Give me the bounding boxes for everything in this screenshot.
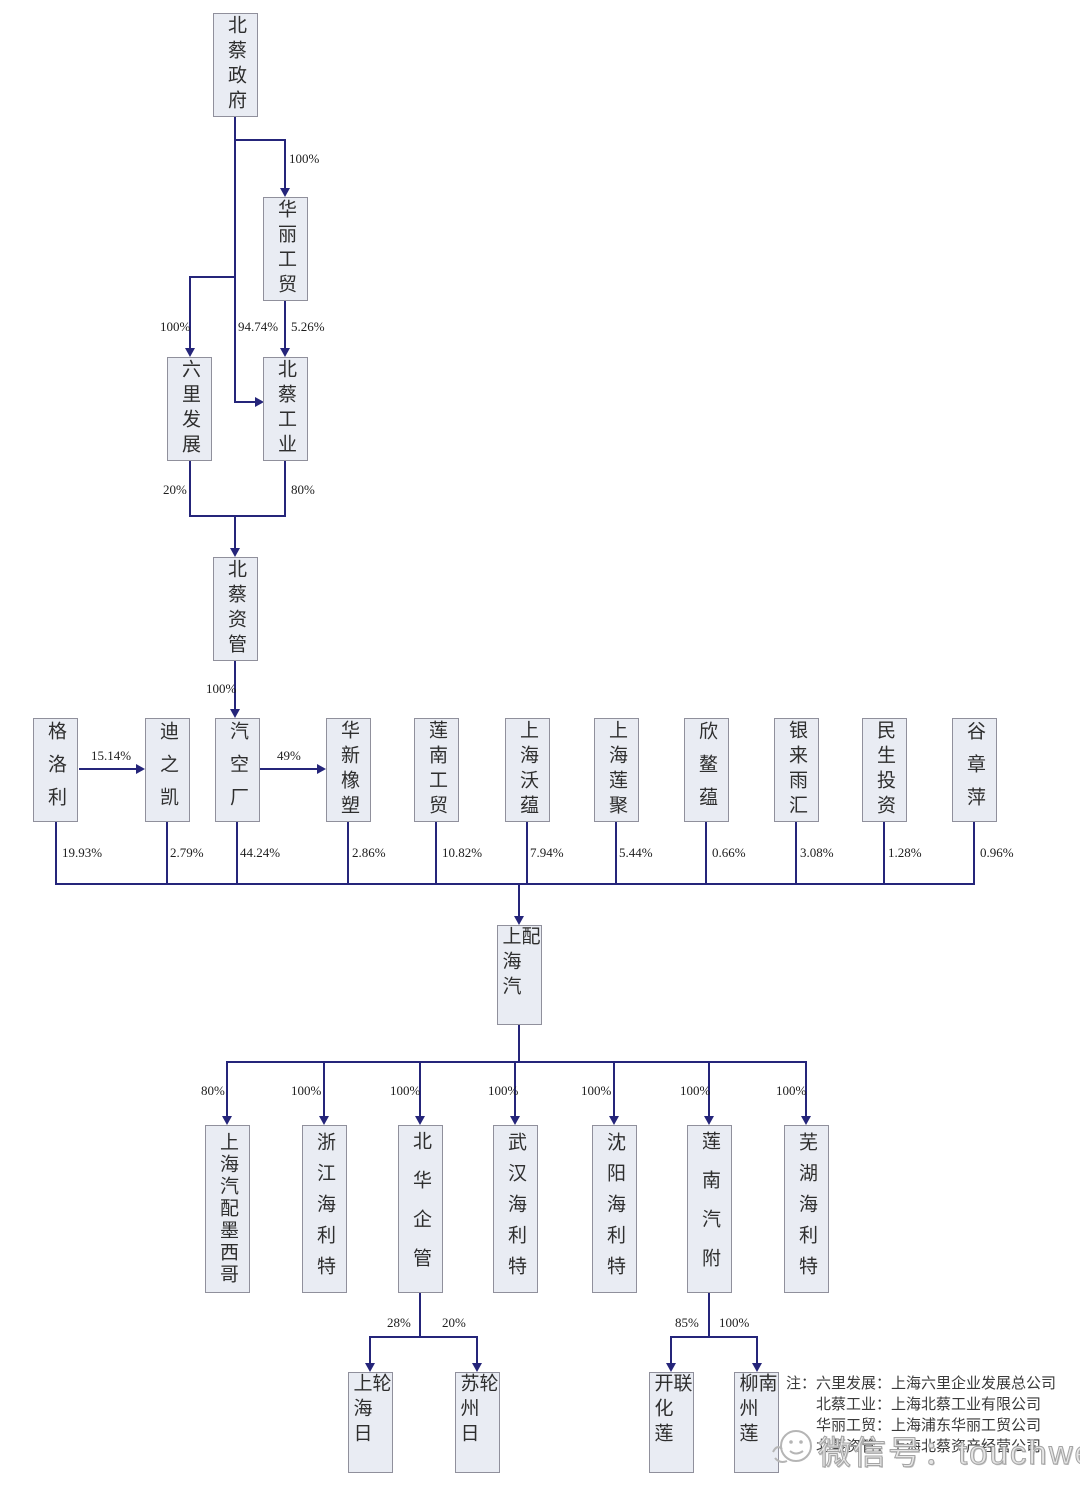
edge-line: [260, 768, 318, 770]
node-label: 北蔡政府: [226, 15, 245, 115]
edge-line: [323, 1061, 325, 1117]
ownership-label: 20%: [163, 482, 187, 498]
ownership-label: 100%: [581, 1083, 611, 1099]
arrow-down-icon: [185, 348, 195, 357]
node-wuhan-hailite: 武汉海利特: [493, 1125, 538, 1293]
edge-line: [795, 822, 797, 885]
node-shenyang-hailite: 沈阳海利特: [592, 1125, 637, 1293]
edge-line: [883, 822, 885, 885]
node-yinlai-yuhui: 银来雨汇: [774, 718, 819, 822]
edge-line: [189, 515, 286, 517]
ownership-label: 1.28%: [888, 845, 922, 861]
node-label: 格洛利: [46, 721, 65, 820]
node-beicai-gov: 北蔡政府: [213, 13, 258, 117]
edge-line: [189, 461, 191, 517]
edge-line: [526, 822, 528, 885]
ownership-label: 100%: [206, 681, 236, 697]
arrow-down-icon: [222, 1116, 232, 1125]
node-label: 北蔡资管: [226, 559, 245, 659]
arrow-down-icon: [514, 916, 524, 925]
node-label: 莲南工贸: [427, 720, 446, 820]
node-label: 汽空厂: [228, 721, 247, 820]
edge-line: [234, 117, 236, 403]
edge-line: [234, 401, 255, 403]
node-gu-zhangping: 谷章萍: [952, 718, 997, 822]
ownership-label: 85%: [675, 1315, 699, 1331]
arrow-down-icon: [230, 709, 240, 718]
footnote-line: 注：六里发展：上海六里企业发展总公司: [786, 1374, 1056, 1395]
ownership-label: 0.96%: [980, 845, 1014, 861]
node-label: 谷章萍: [965, 721, 984, 820]
edge-line: [347, 822, 349, 885]
ownership-label: 20%: [442, 1315, 466, 1331]
node-label: 上海沃蕴: [518, 720, 537, 820]
node-wuhu-hailite: 芜湖海利特: [784, 1125, 829, 1293]
arrow-down-icon: [510, 1116, 520, 1125]
arrow-down-icon: [280, 348, 290, 357]
node-label: 北蔡工业: [276, 359, 295, 459]
node-qikongchang: 汽空厂: [215, 718, 260, 822]
edge-line: [435, 822, 437, 885]
node-label: 民生投资: [875, 720, 894, 820]
edge-line: [369, 1336, 371, 1364]
edge-line: [670, 1336, 758, 1338]
node-suzhou-rilun: 苏州日轮: [455, 1372, 500, 1473]
node-label: 迪之凯: [158, 721, 177, 820]
ownership-label: 80%: [201, 1083, 225, 1099]
ownership-label: 100%: [719, 1315, 749, 1331]
node-shanghai-qipei: 上海汽配: [497, 925, 542, 1025]
ownership-label: 100%: [680, 1083, 710, 1099]
edge-line: [756, 1336, 758, 1364]
node-shanghai-lianju: 上海莲聚: [594, 718, 639, 822]
edge-line: [419, 1293, 421, 1338]
node-dizhikai: 迪之凯: [145, 718, 190, 822]
arrow-down-icon: [280, 188, 290, 197]
node-label: 上海汽配墨西哥: [218, 1132, 237, 1286]
ownership-label: 94.74%: [238, 319, 278, 335]
edge-line: [973, 822, 975, 885]
arrow-right-icon: [136, 764, 145, 774]
arrow-right-icon: [317, 764, 326, 774]
ownership-label: 49%: [277, 748, 301, 764]
node-huaxin-xiangsu: 华新橡塑: [326, 718, 371, 822]
footnote-text: 六里发展：上海六里企业发展总公司: [816, 1376, 1056, 1392]
edge-line: [369, 1336, 478, 1338]
node-label: 上海莲聚: [607, 720, 626, 820]
edge-line: [476, 1336, 478, 1364]
node-label: 苏州日轮: [459, 1373, 497, 1472]
edge-line: [226, 1061, 228, 1117]
node-beicai-ziguan: 北蔡资管: [213, 557, 258, 661]
node-beicai-gongye: 北蔡工业: [263, 357, 308, 461]
node-label: 浙江海利特: [315, 1132, 334, 1287]
footnote-line: 北蔡资管：上海北蔡资产经营公司: [786, 1437, 1056, 1458]
ownership-label: 100%: [291, 1083, 321, 1099]
bus-line: [226, 1061, 807, 1063]
node-label: 华丽工贸: [276, 199, 295, 299]
edge-line: [189, 276, 236, 278]
edge-line: [284, 300, 286, 349]
node-geluoli: 格洛利: [33, 718, 78, 822]
edge-line: [615, 822, 617, 885]
ownership-label: 15.14%: [91, 748, 131, 764]
node-label: 开化莲联: [653, 1373, 691, 1472]
footnote-prefix: 注：: [786, 1376, 816, 1392]
ownership-label: 2.86%: [352, 845, 386, 861]
edge-line: [518, 1025, 520, 1063]
edge-line: [236, 822, 238, 885]
node-label: 华新橡塑: [339, 720, 358, 820]
node-label: 北华企管: [411, 1131, 430, 1287]
arrow-down-icon: [365, 1363, 375, 1372]
ownership-label: 19.93%: [62, 845, 102, 861]
node-label: 六里发展: [180, 359, 199, 459]
bus-line: [55, 883, 975, 885]
node-label: 莲南汽附: [700, 1131, 719, 1287]
node-shanghai-woyun: 上海沃蕴: [505, 718, 550, 822]
node-label: 武汉海利特: [506, 1132, 525, 1287]
node-minsheng-touzi: 民生投资: [862, 718, 907, 822]
edge-line: [284, 461, 286, 517]
ownership-label: 80%: [291, 482, 315, 498]
ownership-label: 3.08%: [800, 845, 834, 861]
node-sh-qipei-mexico: 上海汽配墨西哥: [205, 1125, 250, 1293]
ownership-label: 28%: [387, 1315, 411, 1331]
node-label: 沈阳海利特: [605, 1132, 624, 1287]
arrow-down-icon: [319, 1116, 329, 1125]
node-liannan-gongmao: 莲南工贸: [414, 718, 459, 822]
edge-line: [708, 1293, 710, 1338]
ownership-label: 100%: [289, 151, 319, 167]
edge-line: [670, 1336, 672, 1364]
ownership-label: 100%: [776, 1083, 806, 1099]
node-label: 柳州莲南: [738, 1373, 776, 1472]
ownership-label: 5.44%: [619, 845, 653, 861]
arrow-down-icon: [666, 1363, 676, 1372]
edge-line: [613, 1061, 615, 1117]
footnotes: 注：六里发展：上海六里企业发展总公司 北蔡工业：上海北蔡工业有限公司 华丽工贸：…: [786, 1374, 1056, 1458]
edge-line: [189, 276, 191, 349]
node-label: 欣鳌蕴: [697, 721, 716, 820]
ownership-label: 0.66%: [712, 845, 746, 861]
node-zhejiang-hailite: 浙江海利特: [302, 1125, 347, 1293]
node-beihua-qiguan: 北华企管: [398, 1125, 443, 1293]
ownership-label: 7.94%: [530, 845, 564, 861]
node-kaihua-lianlian: 开化莲联: [649, 1372, 694, 1473]
ownership-label: 100%: [160, 319, 190, 335]
node-label: 上海日轮: [352, 1373, 390, 1472]
ownership-label: 44.24%: [240, 845, 280, 861]
node-xinaoyun: 欣鳌蕴: [684, 718, 729, 822]
footnote-line: 华丽工贸：上海浦东华丽工贸公司: [786, 1416, 1056, 1437]
arrow-down-icon: [230, 548, 240, 557]
node-huali-gongmao: 华丽工贸: [263, 197, 308, 301]
arrow-down-icon: [801, 1116, 811, 1125]
node-liuli-fazhan: 六里发展: [167, 357, 212, 461]
ownership-label: 2.79%: [170, 845, 204, 861]
edge-line: [705, 822, 707, 885]
arrow-down-icon: [609, 1116, 619, 1125]
ownership-label: 100%: [488, 1083, 518, 1099]
node-liuzhou-liannan: 柳州莲南: [734, 1372, 779, 1473]
edge-line: [284, 139, 286, 189]
arrow-down-icon: [704, 1116, 714, 1125]
ownership-label: 5.26%: [291, 319, 325, 335]
arrow-down-icon: [752, 1363, 762, 1372]
node-label: 芜湖海利特: [797, 1132, 816, 1287]
node-shanghai-rilun: 上海日轮: [348, 1372, 393, 1473]
edge-line: [234, 515, 236, 549]
arrow-down-icon: [415, 1116, 425, 1125]
arrow-down-icon: [472, 1363, 482, 1372]
node-label: 银来雨汇: [787, 720, 806, 820]
node-liannan-qifu: 莲南汽附: [687, 1125, 732, 1293]
footnote-line: 北蔡工业：上海北蔡工业有限公司: [786, 1395, 1056, 1416]
node-label: 上海汽配: [501, 926, 539, 1024]
edge-line: [234, 139, 286, 141]
edge-line: [518, 883, 520, 917]
ownership-label: 10.82%: [442, 845, 482, 861]
edge-line: [79, 768, 137, 770]
ownership-label: 100%: [390, 1083, 420, 1099]
edge-line: [166, 822, 168, 885]
equity-structure-diagram: 100% 100% 94.74% 5.26% 20% 80% 100% 15.1…: [0, 0, 1080, 1497]
edge-line: [55, 822, 57, 885]
